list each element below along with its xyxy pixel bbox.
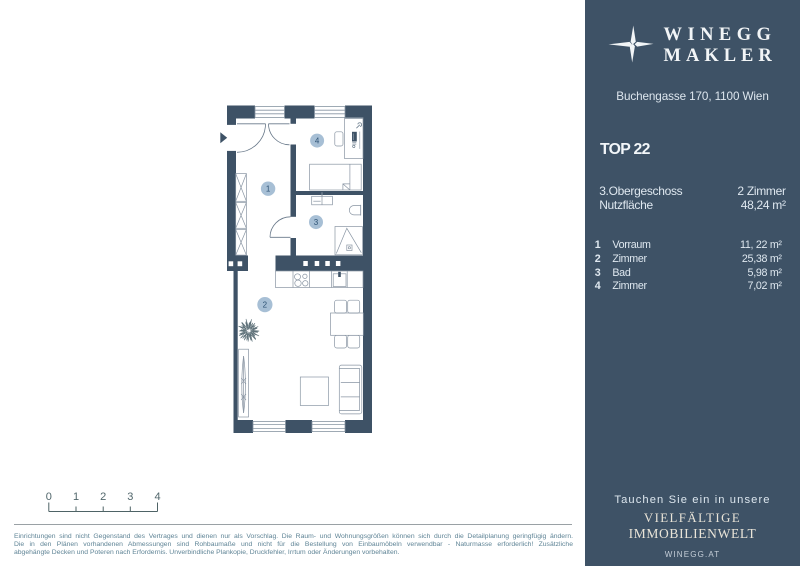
svg-text:1: 1 — [266, 185, 271, 194]
svg-text:3: 3 — [127, 491, 133, 503]
svg-text:0: 0 — [46, 491, 52, 503]
svg-text:4: 4 — [154, 491, 160, 503]
svg-text:4: 4 — [315, 137, 320, 146]
svg-text:3: 3 — [314, 218, 319, 227]
svg-text:2: 2 — [100, 491, 106, 503]
svg-text:2: 2 — [263, 301, 268, 310]
svg-text:1: 1 — [73, 491, 79, 503]
